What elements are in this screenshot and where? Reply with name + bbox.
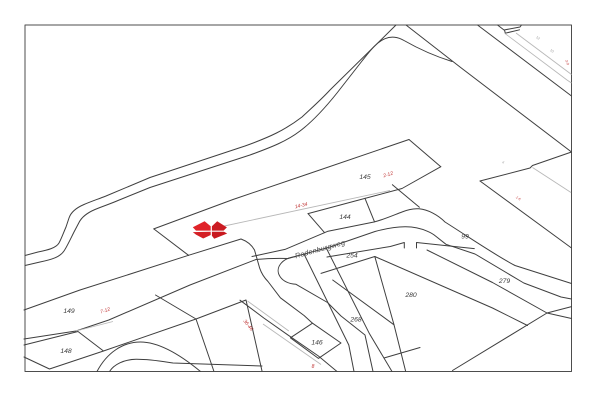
svg-text:149: 149	[63, 308, 75, 315]
svg-text:148: 148	[60, 348, 72, 355]
svg-text:254: 254	[345, 253, 358, 260]
svg-text:144: 144	[339, 214, 351, 221]
svg-text:146: 146	[311, 340, 323, 347]
svg-text:279: 279	[498, 278, 511, 285]
svg-text:145: 145	[359, 174, 371, 181]
svg-text:8: 8	[312, 364, 315, 370]
svg-text:280: 280	[404, 292, 417, 299]
svg-text:99: 99	[461, 234, 469, 241]
svg-text:268: 268	[349, 317, 362, 324]
